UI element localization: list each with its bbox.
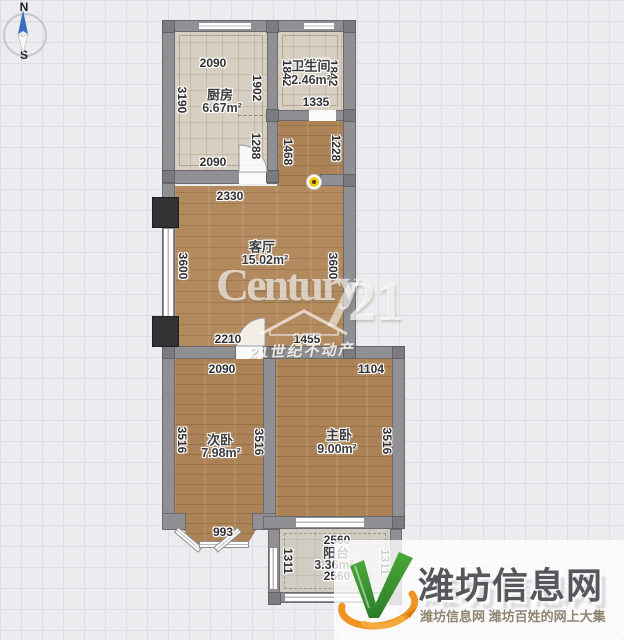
dimension-label: 1468	[281, 139, 295, 166]
dimension-label: 3600	[176, 253, 190, 280]
wall-junction	[343, 109, 356, 122]
dimension-label: 3600	[326, 253, 340, 280]
dimension-label: 1455	[294, 332, 321, 346]
wall-junction	[343, 174, 356, 187]
dimension-label: 1104	[358, 362, 384, 376]
dimension-label: 1902	[250, 75, 264, 102]
room-area-label: 7.98m²	[201, 446, 241, 460]
dimension-label: 2090	[200, 56, 227, 70]
wall-junction	[343, 346, 356, 359]
dimension-label: 3516	[380, 428, 394, 455]
wall-junction	[162, 20, 175, 33]
wall-junction	[392, 346, 405, 359]
panorama-camera-dot[interactable]	[306, 174, 322, 190]
dimension-label: 3190	[175, 87, 189, 114]
room-area-label: 9.00m²	[317, 442, 357, 456]
wall-junction	[162, 346, 175, 359]
dimension-label: 2210	[215, 332, 242, 346]
wall-kitchen-bathroom-divider	[267, 20, 278, 184]
living-room-window	[163, 228, 174, 317]
wall-junction	[343, 20, 356, 33]
dimension-label: 2090	[200, 155, 227, 169]
wall-bedroom2-bay-left-block	[162, 513, 186, 530]
bathroom-window	[303, 22, 335, 30]
site-logo-v-icon	[336, 548, 424, 634]
wall-pier	[152, 316, 179, 347]
wall-junction	[263, 346, 276, 359]
wall-exterior-right	[343, 20, 356, 359]
dimension-label: 993	[213, 525, 233, 539]
dimension-label: 1228	[329, 135, 343, 162]
dimension-label: 1288	[249, 133, 263, 160]
bedroom1-balcony-window	[295, 517, 365, 528]
wall-bedroom1-top	[267, 346, 405, 359]
wall-junction	[162, 170, 175, 183]
dimension-label: 2330	[217, 189, 244, 203]
room-area-label: 2.46m²	[291, 73, 331, 87]
room-area-label: 15.02m²	[242, 253, 289, 267]
kitchen-door-opening	[239, 170, 267, 184]
site-logo: 潍坊信息网 潍坊信息网 潍坊百姓的网上大集	[334, 540, 624, 640]
floor-plan: N S	[0, 0, 624, 640]
compass-needle-icon	[0, 2, 48, 60]
wall-junction	[392, 516, 405, 529]
kitchen-dashed-line	[238, 115, 268, 116]
bathroom-door-opening	[309, 110, 336, 121]
balcony-left-window	[269, 547, 278, 590]
site-logo-subtitle: 潍坊信息网 潍坊百姓的网上大集	[420, 606, 606, 625]
dimension-label: 3516	[175, 427, 189, 454]
century21-number: 21	[348, 270, 404, 334]
kitchen-window	[198, 22, 252, 30]
dimension-label: 3516	[252, 429, 266, 456]
compass: N S	[0, 2, 48, 60]
wall-junction	[268, 592, 281, 605]
wall-junction	[266, 20, 279, 33]
wall-pier	[152, 197, 179, 228]
dimension-label: 2090	[209, 362, 236, 376]
dimension-label: 1335	[303, 95, 330, 109]
room-name-label: 卫生间	[291, 56, 330, 75]
room-area-label: 6.67m²	[202, 101, 242, 115]
room-name-label: 主卧	[326, 425, 352, 444]
dimension-label: 1311	[281, 548, 295, 574]
wall-junction	[266, 170, 279, 183]
site-logo-title: 潍坊信息网	[418, 557, 603, 609]
